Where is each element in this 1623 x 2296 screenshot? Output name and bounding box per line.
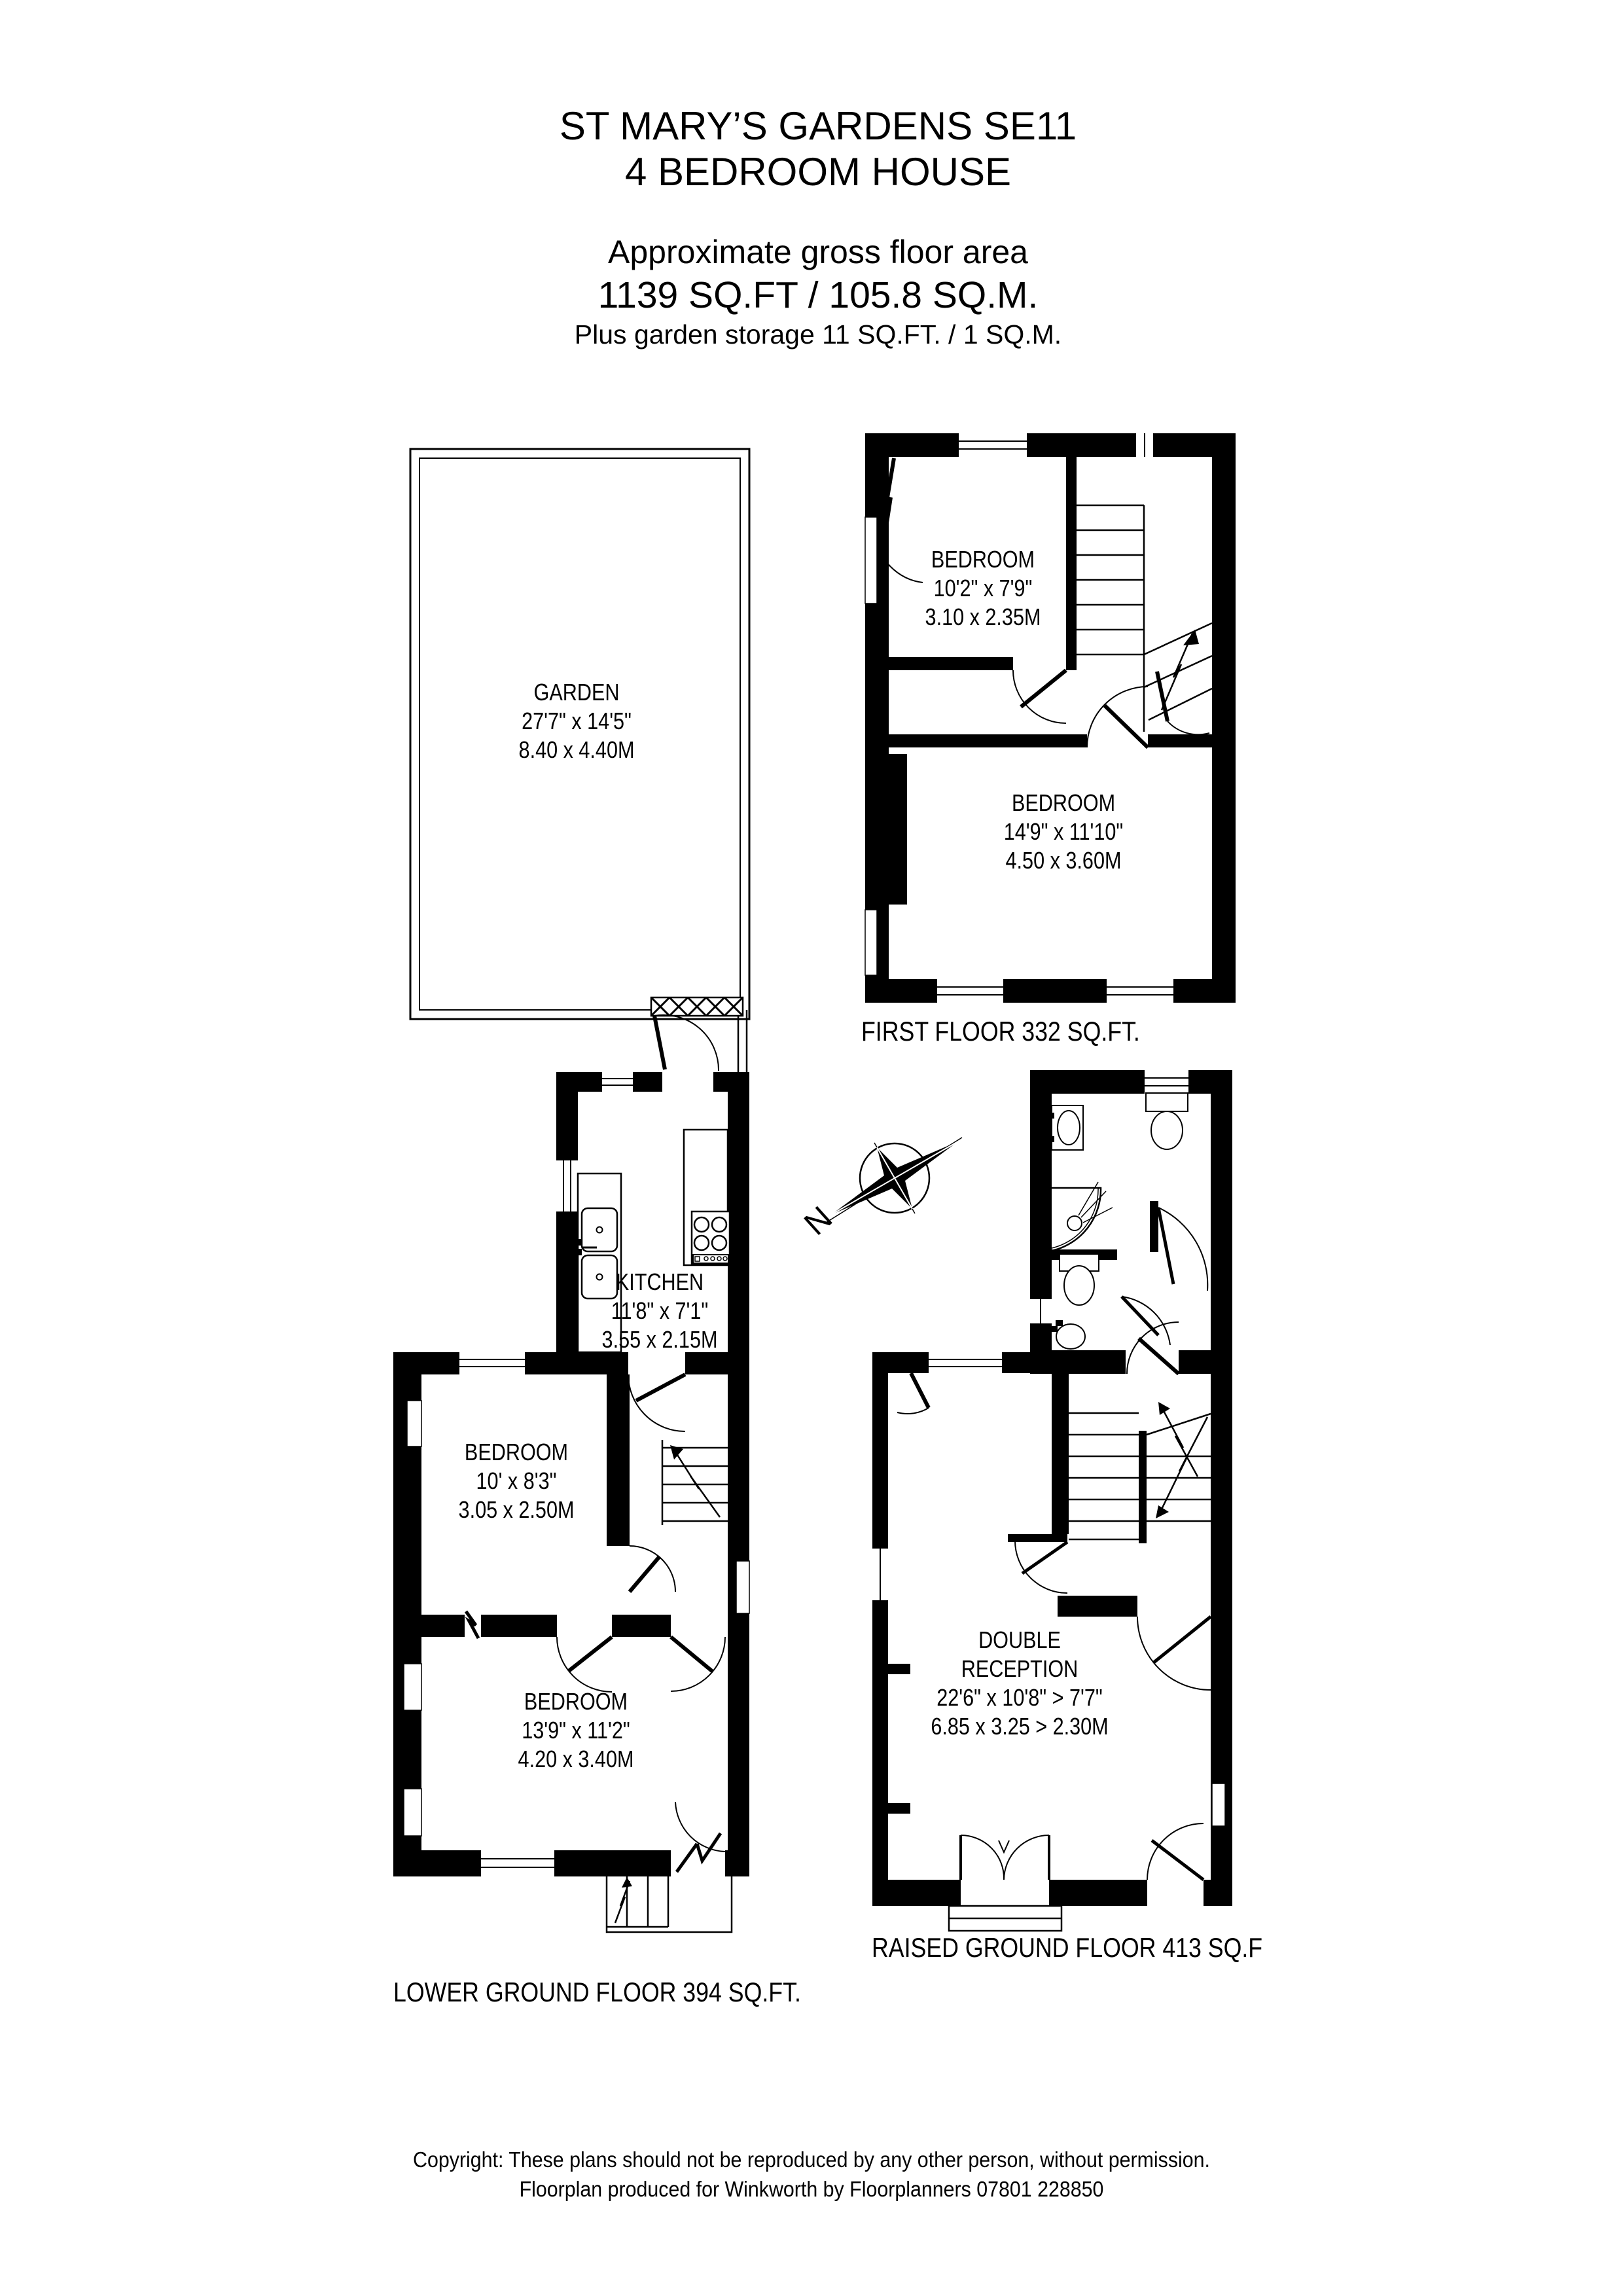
lower-ground-bedroom-middle-label: BEDROOM 10' x 8'3" 3.05 x 2.50M: [459, 1438, 575, 1524]
garden-label: GARDEN 27'7" x 14'5" 8.40 x 4.40M: [519, 678, 635, 764]
compass-rose: [826, 1138, 962, 1223]
reception-rear-door: [1147, 1823, 1204, 1880]
first-floor-caption: FIRST FLOOR 332 SQ.FT.: [861, 1016, 1140, 1047]
area-heading: Approximate gross floor area: [608, 233, 1028, 271]
kitchen-label: KITCHEN 11'8" x 7'1" 3.55 x 2.15M: [602, 1268, 718, 1354]
wc-basin: [1050, 1320, 1085, 1349]
floorplan-page: ST MARY’S GARDENS SE11 4 BEDROOM HOUSE A…: [0, 0, 1623, 2296]
first-floor-bedroom-small-label: BEDROOM 10'2" x 7'9" 3.10 x 2.35M: [925, 545, 1041, 632]
double-reception-label: DOUBLE RECEPTION 22'6" x 10'8" > 7'7" 6.…: [931, 1626, 1108, 1741]
kitchen-hob: [684, 1130, 730, 1265]
page-title-line1: ST MARY’S GARDENS SE11: [560, 103, 1077, 149]
first-floor-walls: [865, 433, 1236, 1003]
area-value: 1139 SQ.FT / 105.8 SQ.M.: [598, 274, 1039, 317]
bathroom-toilet: [1146, 1093, 1188, 1149]
first-floor-staircase: [1077, 505, 1212, 732]
lower-ground-bedroom-front-label: BEDROOM 13'9" x 11'2" 4.20 x 3.40M: [518, 1687, 634, 1774]
credit-line: Floorplan produced for Winkworth by Floo…: [520, 2177, 1104, 2202]
page-title-line2: 4 BEDROOM HOUSE: [625, 149, 1011, 194]
bathroom-basin: [1046, 1105, 1083, 1150]
wc-toilet: [1060, 1254, 1099, 1305]
area-note: Plus garden storage 11 SQ.FT. / 1 SQ.M.: [575, 319, 1061, 350]
first-floor-windows: [865, 433, 1173, 1003]
first-floor-bedroom-large-label: BEDROOM 14'9" x 11'10" 4.50 x 3.60M: [1004, 789, 1124, 875]
raised-ground-walls: [872, 1070, 1232, 1906]
shower: [1052, 1182, 1113, 1251]
copyright-line: Copyright: These plans should not be rep…: [413, 2147, 1210, 2172]
raised-ground-caption: RAISED GROUND FLOOR 413 SQ.F: [872, 1932, 1262, 1964]
external-steps: [607, 1876, 732, 1932]
lower-ground-staircase: [662, 1440, 728, 1525]
front-steps: [949, 1906, 1061, 1931]
garden-to-kitchen-door: [654, 1015, 719, 1071]
french-doors: [961, 1835, 1049, 1880]
lower-ground-caption: LOWER GROUND FLOOR 394 SQ.FT.: [393, 1977, 801, 2008]
garden-storage-hatch: [651, 997, 743, 1016]
